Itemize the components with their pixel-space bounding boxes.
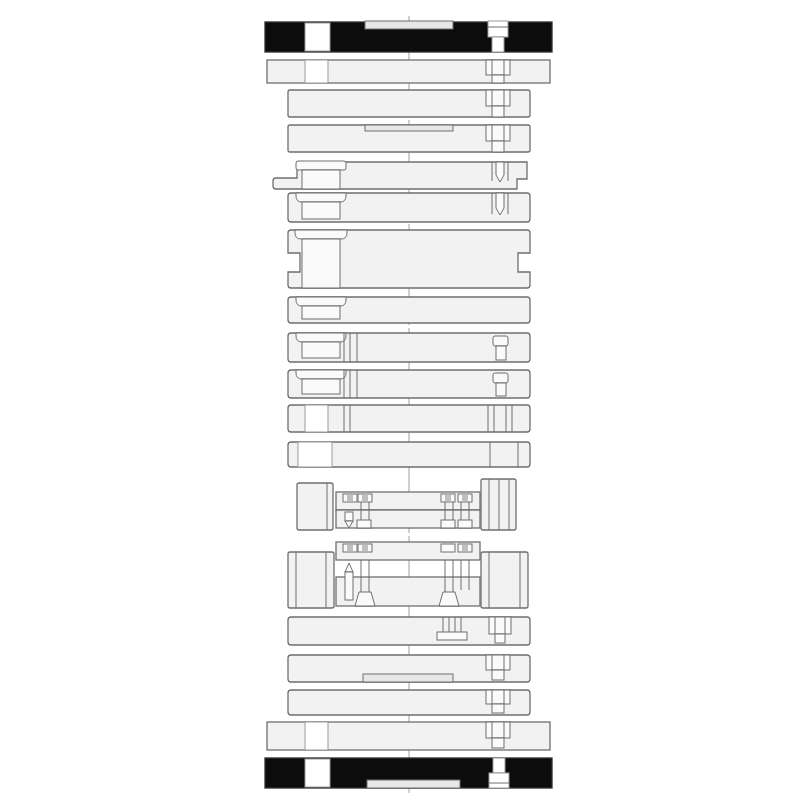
pad-plate-2 — [288, 333, 530, 362]
guide-post-hole — [298, 442, 332, 467]
bolt-shank — [496, 346, 506, 360]
left-lower-spacer-block — [288, 552, 334, 608]
block-body — [288, 552, 334, 608]
punch-clamp-plate — [273, 161, 527, 189]
block-body — [297, 483, 333, 530]
bottom-clamping-plate — [265, 758, 552, 788]
head-hatch — [462, 495, 468, 501]
bushing-flange — [296, 161, 346, 170]
bolt-head — [493, 336, 508, 346]
screw-shank — [492, 670, 504, 680]
screw-head-cutout — [488, 21, 508, 37]
upper-punch-unit — [336, 492, 480, 528]
bushing-flange — [296, 297, 346, 306]
pilot-pin-body — [345, 572, 353, 600]
bushing-body — [302, 306, 340, 319]
upper-backing-plate — [288, 125, 530, 152]
screw-shank — [492, 75, 504, 83]
upper-die-shoe — [288, 230, 530, 288]
screw-shank-cutout — [493, 758, 505, 773]
punch-backing-plate — [288, 193, 530, 222]
guide-column — [302, 239, 340, 288]
head-hatch — [462, 545, 468, 551]
screw-counterbore — [486, 655, 510, 670]
bushing-flange — [296, 193, 346, 202]
guide-post-hole — [305, 722, 328, 750]
screw-counterbore — [486, 722, 510, 738]
upper-mounting-plate — [267, 60, 550, 83]
punch-foot — [458, 520, 472, 528]
guide-post-hole — [305, 405, 328, 432]
lower-punch-unit — [336, 542, 480, 560]
bushing-body — [302, 379, 340, 394]
top-clamping-plate — [265, 21, 552, 52]
right-upper-spacer-block — [481, 479, 516, 530]
screw-shank-cutout — [492, 37, 504, 52]
upper-spacer-plate — [288, 90, 530, 117]
screw-counterbore — [486, 90, 510, 106]
punch-foot — [357, 520, 371, 528]
punch-flared-tip — [439, 592, 459, 606]
guide-post-cutout — [305, 759, 330, 787]
screw-counterbore — [486, 690, 510, 704]
die-assembly-drawing — [0, 0, 800, 800]
head-hatch — [362, 495, 368, 501]
screw-shank — [492, 704, 504, 713]
screw-counterbore — [486, 60, 510, 75]
bullet-pin-body — [345, 512, 353, 521]
bolt-head — [493, 373, 508, 383]
head-hatch — [347, 495, 353, 501]
die-insert-flange — [437, 632, 467, 640]
retainer-plate-1 — [288, 405, 530, 432]
top-recess-strip — [365, 21, 453, 29]
top-recess-strip — [365, 125, 453, 131]
bushing-body — [302, 342, 340, 358]
retainer-plate-2 — [288, 442, 530, 467]
bushing-flange — [296, 333, 346, 342]
punch-flared-tip — [355, 592, 375, 606]
screw-head-cutout — [489, 773, 509, 788]
bushing-body — [302, 170, 340, 189]
pad-plate-1 — [288, 297, 530, 323]
bolt-counterbore — [489, 617, 511, 634]
guide-column-flange — [295, 230, 347, 239]
screw-shank — [492, 106, 504, 117]
lower-spacer-plate — [288, 690, 530, 715]
head-hatch — [362, 545, 368, 551]
screw-counterbore — [486, 125, 510, 141]
screw-shank — [492, 738, 504, 748]
pad-plate-3 — [288, 370, 530, 398]
block-body — [481, 552, 528, 608]
bushing-body — [302, 202, 340, 219]
bolt-shank — [495, 634, 505, 643]
head-hatch — [347, 545, 353, 551]
bottom-recess-strip — [367, 780, 460, 788]
right-lower-spacer-block — [481, 552, 528, 608]
punch-foot — [441, 520, 455, 528]
bushing-flange — [296, 370, 346, 379]
lower-mounting-plate — [267, 722, 550, 750]
head-hatch — [445, 495, 451, 501]
lower-backing-plate — [288, 655, 530, 682]
left-upper-spacer-block — [297, 483, 333, 530]
drawing-svg — [0, 0, 800, 800]
screw-shank — [492, 141, 504, 152]
guide-post-hole — [305, 60, 328, 83]
guide-post-cutout — [305, 23, 330, 51]
bottom-recess-strip — [363, 674, 453, 682]
die-plate — [288, 617, 530, 645]
head-outline — [441, 544, 455, 552]
bolt-shank — [496, 383, 506, 396]
